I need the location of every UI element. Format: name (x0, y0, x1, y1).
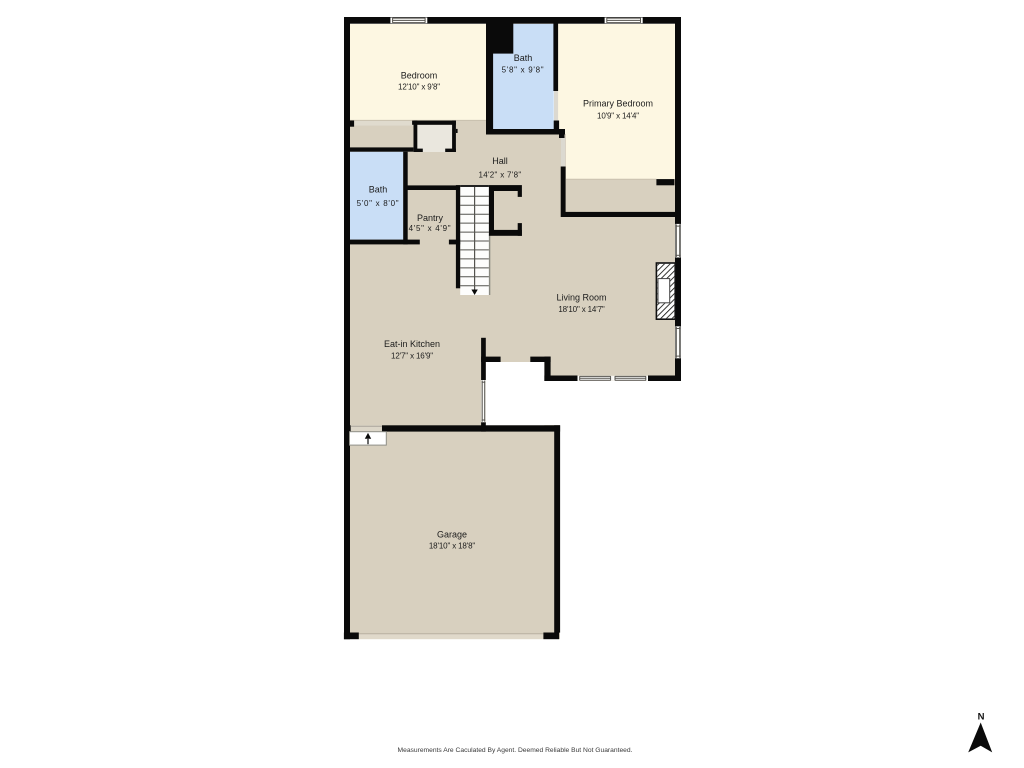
svg-text:Primary Bedroom: Primary Bedroom (583, 99, 653, 109)
svg-text:18'10" x 18'8": 18'10" x 18'8" (429, 542, 476, 551)
svg-text:Living Room: Living Room (556, 293, 606, 303)
svg-text:14'2" x 7'8": 14'2" x 7'8" (478, 171, 521, 180)
svg-text:Bedroom: Bedroom (401, 71, 438, 81)
svg-text:Bath: Bath (514, 53, 533, 63)
svg-text:12'7" x 16'9": 12'7" x 16'9" (391, 352, 433, 361)
svg-text:N: N (978, 712, 985, 723)
svg-text:Measurements Are Caculated By: Measurements Are Caculated By Agent. Dee… (398, 747, 633, 754)
svg-text:Garage: Garage (437, 530, 467, 540)
svg-text:Pantry: Pantry (417, 213, 444, 223)
svg-text:4'5" x 4'9": 4'5" x 4'9" (409, 224, 452, 233)
svg-text:10'9" x 14'4": 10'9" x 14'4" (597, 112, 639, 121)
svg-text:Hall: Hall (492, 156, 508, 166)
svg-text:5'8" x 9'8": 5'8" x 9'8" (502, 66, 545, 75)
svg-text:18'10" x 14'7": 18'10" x 14'7" (558, 305, 605, 314)
svg-text:Eat-in Kitchen: Eat-in Kitchen (384, 339, 440, 349)
svg-text:5'0" x 8'0": 5'0" x 8'0" (357, 199, 400, 208)
svg-text:Bath: Bath (369, 185, 388, 195)
svg-text:12'10" x 9'8": 12'10" x 9'8" (398, 83, 440, 92)
